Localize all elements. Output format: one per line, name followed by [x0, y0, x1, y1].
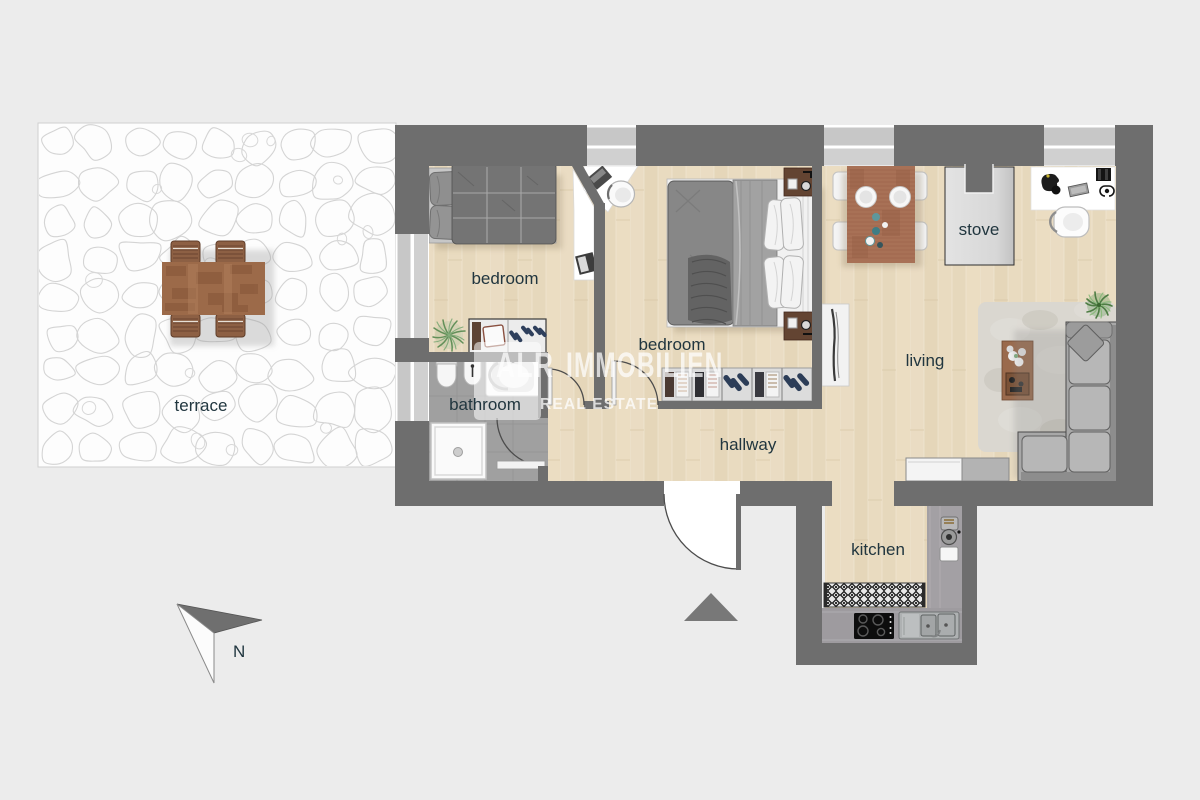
svg-text:bedroom: bedroom	[471, 269, 538, 288]
svg-text:hallway: hallway	[720, 435, 777, 454]
svg-text:kitchen: kitchen	[851, 540, 905, 559]
svg-text:bathroom: bathroom	[449, 395, 521, 414]
svg-text:N: N	[233, 642, 245, 661]
svg-text:living: living	[906, 351, 945, 370]
svg-text:REAL ESTATE: REAL ESTATE	[540, 396, 658, 413]
svg-text:ALR: ALR	[496, 345, 554, 385]
svg-text:bedroom: bedroom	[638, 335, 705, 354]
svg-text:stove: stove	[959, 220, 1000, 239]
svg-text:terrace: terrace	[175, 396, 228, 415]
